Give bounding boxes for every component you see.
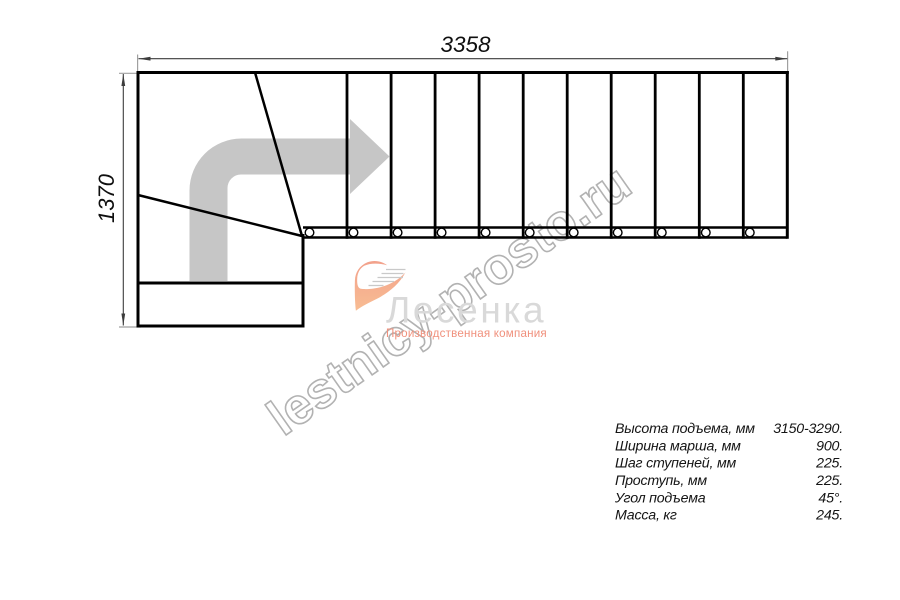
svg-text:225.: 225. xyxy=(815,456,843,472)
svg-text:245.: 245. xyxy=(815,508,843,524)
svg-text:Угол подъема: Угол подъема xyxy=(614,490,706,506)
svg-text:Шаг ступеней, мм: Шаг ступеней, мм xyxy=(615,456,736,472)
svg-text:1370: 1370 xyxy=(94,173,119,223)
svg-text:3150-3290.: 3150-3290. xyxy=(773,421,843,437)
svg-text:Масса, кг: Масса, кг xyxy=(615,508,677,524)
svg-text:Высота подъема, мм: Высота подъема, мм xyxy=(615,421,755,437)
svg-text:Лесенка: Лесенка xyxy=(386,290,546,331)
svg-text:45°.: 45°. xyxy=(818,490,843,506)
svg-text:Производственная компания: Производственная компания xyxy=(386,327,547,340)
svg-text:Ширина марша, мм: Ширина марша, мм xyxy=(615,438,741,454)
svg-text:225.: 225. xyxy=(815,473,843,489)
svg-text:3358: 3358 xyxy=(440,32,491,57)
svg-text:900.: 900. xyxy=(816,438,843,454)
svg-text:Проступь, мм: Проступь, мм xyxy=(615,473,707,489)
